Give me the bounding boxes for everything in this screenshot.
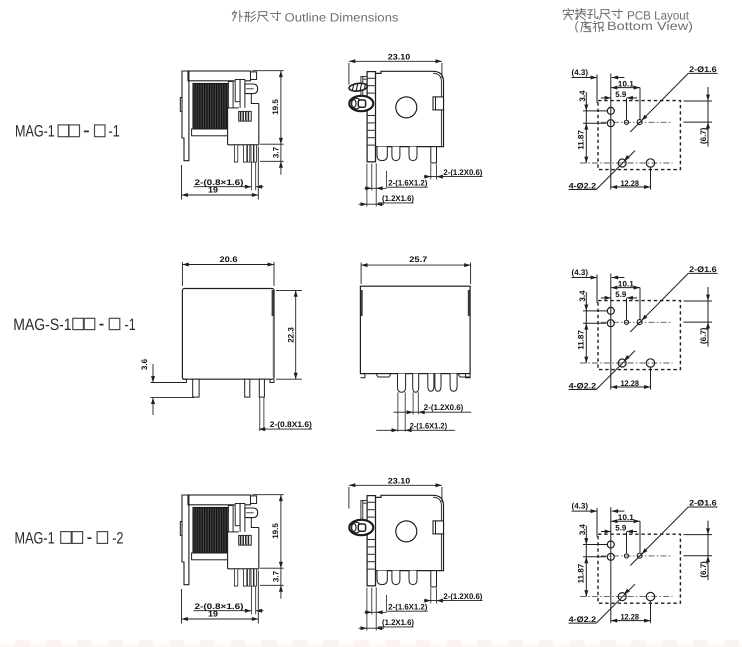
svg-text:(4.3): (4.3)	[572, 268, 589, 277]
svg-text:2-(0.8X1.6): 2-(0.8X1.6)	[270, 420, 312, 429]
svg-text:Outline Dimensions: Outline Dimensions	[285, 11, 399, 25]
svg-text:2-(1.2X0.6): 2-(1.2X0.6)	[424, 403, 464, 412]
svg-text:(1.2X1.6): (1.2X1.6)	[382, 618, 414, 627]
svg-text:12.28: 12.28	[620, 379, 639, 388]
svg-text:10.1: 10.1	[618, 513, 635, 522]
svg-text:11.87: 11.87	[577, 330, 586, 350]
svg-text:MAG-1: MAG-1	[15, 530, 55, 548]
svg-text:4-Ø2.2: 4-Ø2.2	[569, 381, 597, 390]
svg-text:3.4: 3.4	[578, 90, 587, 102]
svg-text:12.28: 12.28	[620, 179, 639, 188]
svg-text:2-(1.6X1.2): 2-(1.6X1.2)	[388, 603, 427, 612]
svg-text:5.9: 5.9	[615, 290, 627, 299]
svg-text:23.10: 23.10	[388, 53, 411, 62]
svg-text:5.9: 5.9	[615, 90, 627, 99]
svg-text:Bottom View): Bottom View)	[607, 19, 693, 33]
svg-text:25.7: 25.7	[409, 255, 428, 264]
svg-text:23.10: 23.10	[388, 477, 411, 486]
svg-text:MAG-S-1: MAG-S-1	[13, 316, 71, 334]
svg-text:2-(1.6X1.2): 2-(1.6X1.2)	[410, 421, 448, 430]
svg-text:(4.3): (4.3)	[572, 501, 589, 510]
svg-text:3.7: 3.7	[272, 570, 281, 582]
svg-text:5.9: 5.9	[615, 524, 627, 533]
svg-text:3.4: 3.4	[578, 523, 587, 535]
svg-text:MAG-1: MAG-1	[15, 123, 55, 141]
svg-text:4-Ø2.2: 4-Ø2.2	[569, 615, 597, 624]
svg-text:2-(1.2X0.6): 2-(1.2X0.6)	[443, 592, 482, 601]
svg-text:2-(1.6X1.2): 2-(1.6X1.2)	[388, 179, 427, 188]
svg-text:3.4: 3.4	[578, 290, 587, 302]
svg-text:3.7: 3.7	[272, 146, 281, 158]
svg-text:2-(1.2X0.6): 2-(1.2X0.6)	[443, 168, 482, 177]
svg-text:11.87: 11.87	[577, 563, 586, 583]
svg-text:(6.7): (6.7)	[699, 127, 708, 144]
svg-text:12.28: 12.28	[620, 613, 639, 622]
svg-text:4-Ø2.2: 4-Ø2.2	[569, 181, 597, 190]
svg-text:22.3: 22.3	[286, 327, 295, 343]
svg-text:10.1: 10.1	[618, 79, 635, 88]
svg-text:2-(0.8×1.6): 2-(0.8×1.6)	[195, 178, 244, 187]
svg-text:(: (	[575, 19, 579, 33]
svg-text:19.5: 19.5	[271, 523, 280, 539]
svg-text:2-Ø1.6: 2-Ø1.6	[689, 499, 717, 508]
svg-text:(6.7): (6.7)	[699, 327, 708, 344]
svg-text:11.87: 11.87	[577, 130, 586, 150]
svg-text:-1: -1	[109, 123, 120, 141]
svg-text:2-Ø1.6: 2-Ø1.6	[689, 265, 717, 274]
svg-text:-1: -1	[125, 316, 136, 334]
svg-text:2-Ø1.6: 2-Ø1.6	[689, 65, 717, 74]
svg-text:(1.2X1.6): (1.2X1.6)	[382, 194, 414, 203]
svg-text:3.6: 3.6	[140, 358, 149, 370]
svg-text:20.6: 20.6	[220, 255, 239, 264]
svg-text:10.1: 10.1	[618, 279, 635, 288]
svg-text:19.5: 19.5	[271, 99, 280, 115]
svg-text:2-(0.8×1.6): 2-(0.8×1.6)	[195, 602, 244, 611]
svg-text:-2: -2	[112, 530, 123, 548]
svg-text:(4.3): (4.3)	[572, 68, 589, 77]
svg-text:(6.7): (6.7)	[699, 561, 708, 578]
